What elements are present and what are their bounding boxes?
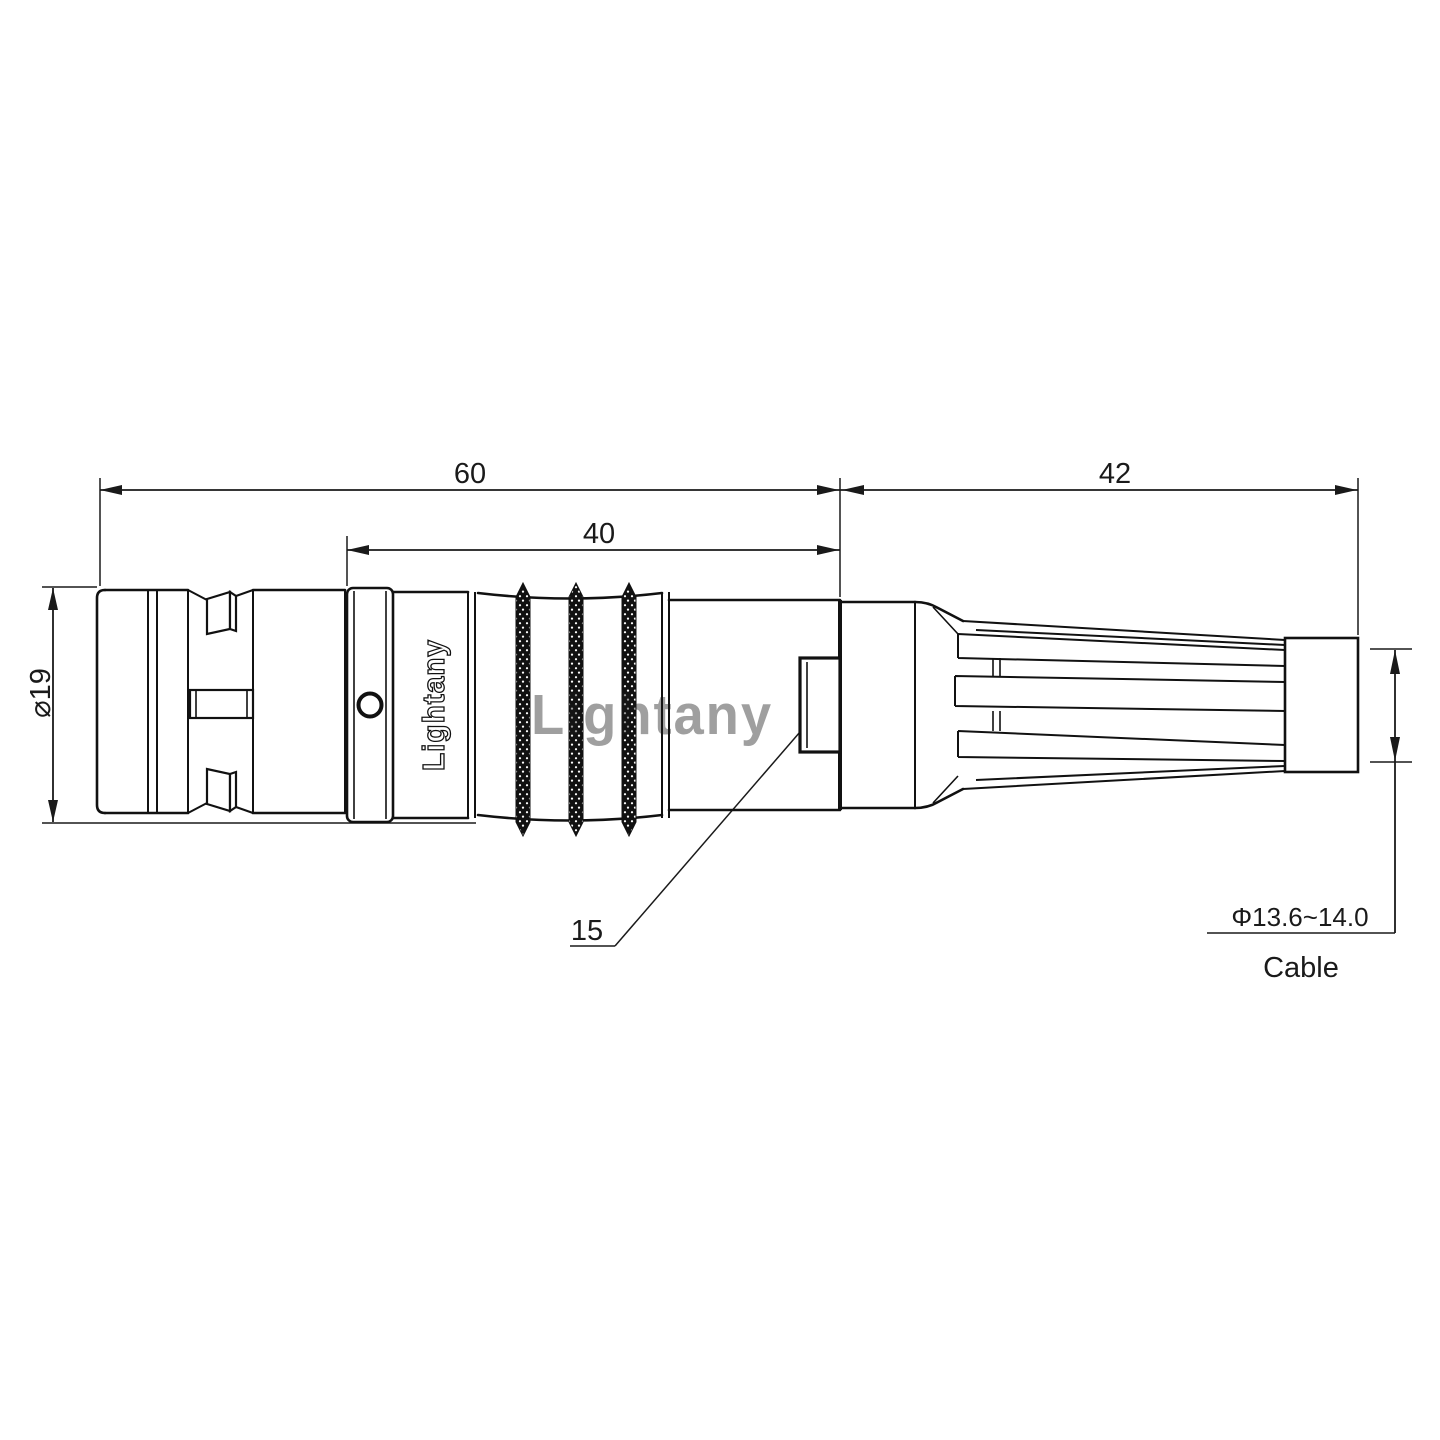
dim-label-60: 60 [454, 458, 486, 490]
dimension-front-diameter: ⌀19 [25, 588, 58, 822]
coupling-ring [347, 588, 393, 822]
strain-relief-boot [915, 602, 1285, 808]
marked-section: Lightany [393, 592, 475, 818]
front-coupling-section [97, 590, 345, 813]
back-section [842, 602, 915, 808]
ring-hole [359, 694, 382, 717]
dim-label-diameter19: ⌀19 [25, 668, 57, 718]
dimension-overall-length: 60 [100, 458, 840, 495]
dimension-boot-length: 42 [840, 458, 1358, 495]
alignment-window [800, 658, 840, 752]
key-slot-middle [190, 690, 253, 718]
dim-label-42: 42 [1099, 458, 1131, 490]
brand-watermark: Lightany [531, 683, 773, 747]
boot-fins [955, 621, 1285, 789]
dim-label-40: 40 [583, 518, 615, 550]
connector-technical-drawing: 60 40 42 ⌀19 [0, 0, 1440, 1440]
latch-key-top [207, 592, 236, 634]
latch-key-bottom [207, 769, 236, 811]
cable-exit-cap [1285, 638, 1358, 772]
body-marking-text: Lightany [416, 639, 451, 771]
dim-label-15: 15 [571, 915, 603, 947]
dim-label-cable-range: Φ13.6~14.0 [1231, 902, 1368, 932]
dimension-body-length: 40 [347, 518, 840, 555]
boot-slot-links [993, 658, 1000, 731]
cable-label: Cable [1263, 952, 1339, 984]
connector-technical-drawing-page: 60 40 42 ⌀19 [0, 0, 1440, 1440]
